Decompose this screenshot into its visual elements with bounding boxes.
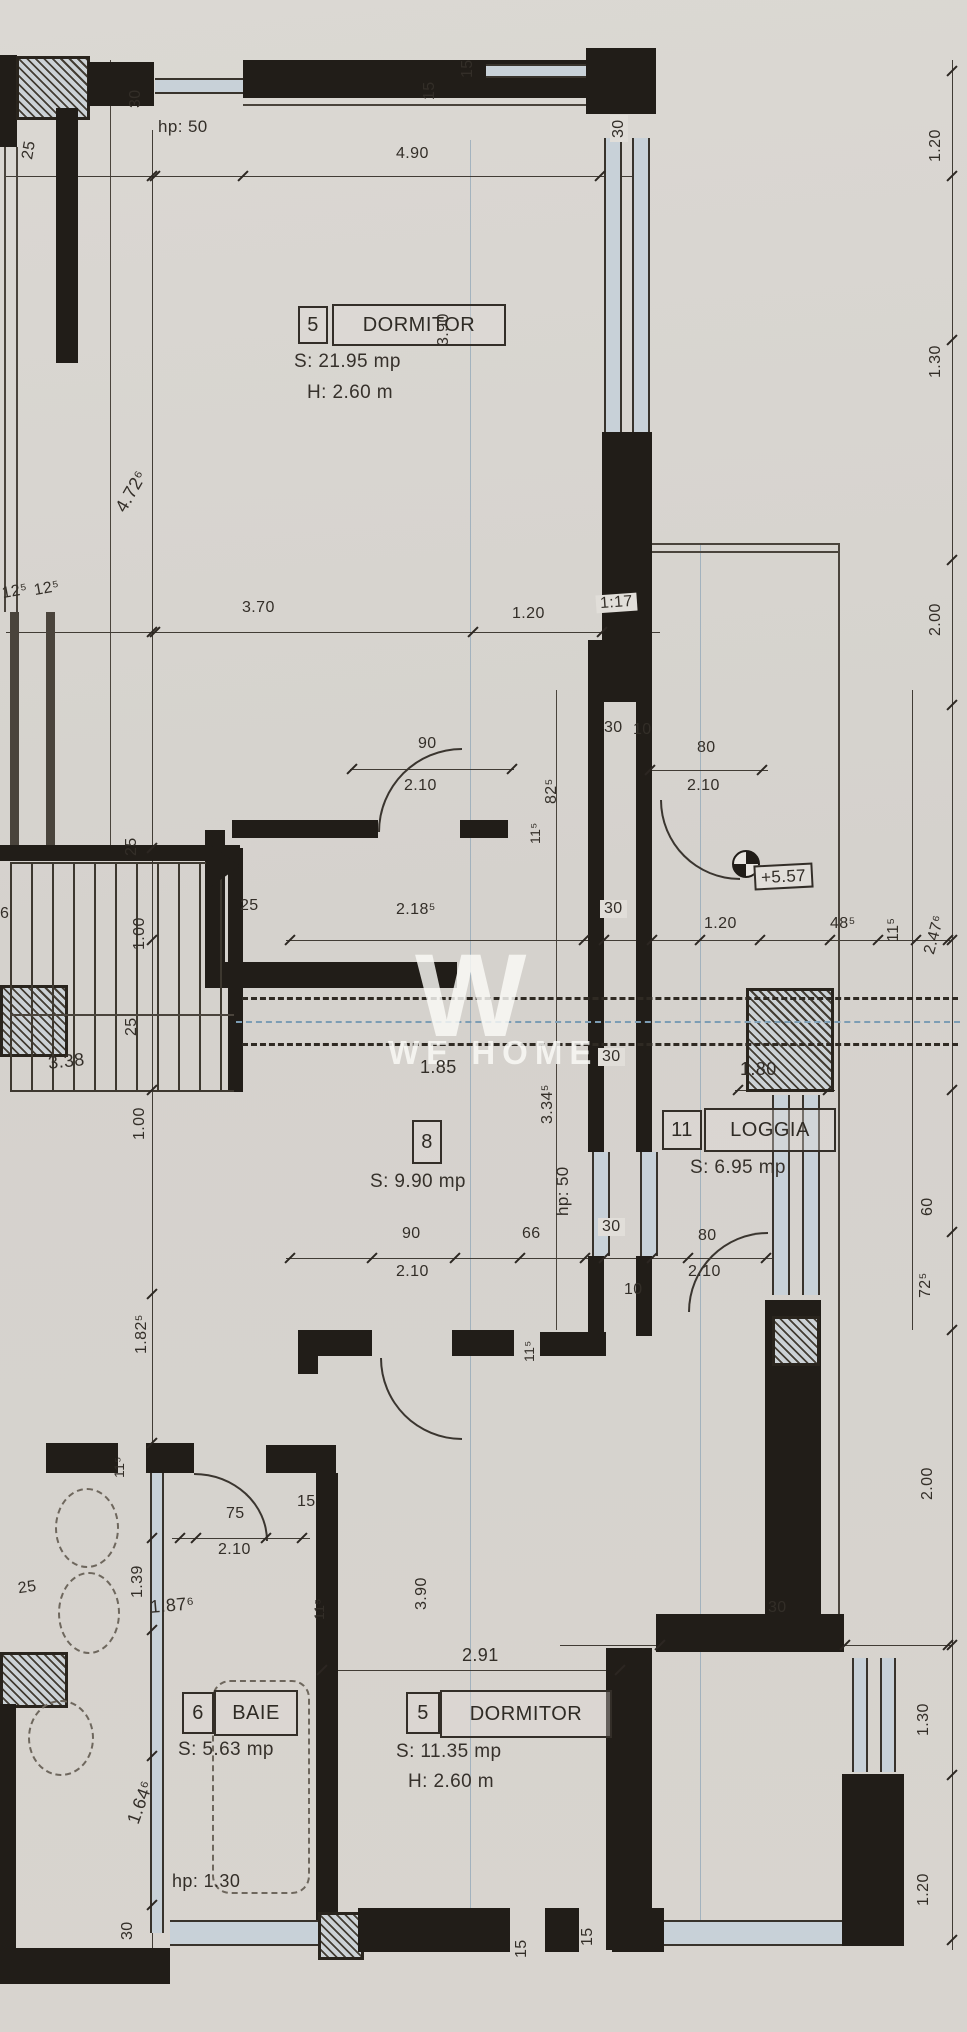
door-arc-90-bottom bbox=[380, 1358, 462, 1440]
section-line-blue bbox=[236, 1021, 960, 1023]
dim-door4-width: 80 bbox=[698, 1228, 717, 1244]
wall-top-inner-face bbox=[243, 104, 593, 106]
wall-right-seg1 bbox=[602, 432, 652, 504]
dim-48-5: 48⁵ bbox=[830, 916, 856, 932]
dim-2-00-right-low: 2.00 bbox=[920, 1467, 936, 1500]
dim-25-stair-c: 25 bbox=[124, 1017, 140, 1036]
wall-hall-baie-b bbox=[146, 1443, 194, 1473]
dim-15-top-b: 15 bbox=[460, 59, 476, 78]
room-11-name-box: LOGGIA bbox=[704, 1108, 836, 1152]
wall-baie-divider bbox=[316, 1473, 338, 1933]
dim-10-shaft-top: 10 bbox=[633, 722, 652, 738]
window-right-low-b bbox=[880, 1658, 896, 1772]
dim-10-loggia: 10 bbox=[624, 1282, 643, 1298]
wall-dorm5b-right bbox=[606, 1648, 652, 1950]
dim-door2-height: 2.10 bbox=[687, 778, 720, 794]
dim-line-top bbox=[6, 176, 642, 177]
dim-11-5-hall: 11⁵ bbox=[112, 1456, 126, 1478]
parapet-note-top: hp: 50 bbox=[158, 118, 208, 135]
wall-bottom-right-pier bbox=[842, 1774, 904, 1946]
wall-room8-bottom-stub bbox=[298, 1330, 318, 1374]
window-bottom-right bbox=[664, 1920, 842, 1946]
dim-line-door2 bbox=[650, 770, 768, 771]
dim-door3-height: 2.10 bbox=[396, 1264, 429, 1280]
dim-3-70: 3.70 bbox=[242, 600, 275, 616]
dim-1-39: 1.39 bbox=[130, 1565, 146, 1598]
dim-1-17: 1:17 bbox=[595, 593, 637, 614]
room-11-number-box: 11 bbox=[662, 1110, 702, 1150]
wall-hall-baie-c bbox=[266, 1445, 336, 1473]
fixture-sink bbox=[55, 1488, 119, 1568]
wall-left-line-a bbox=[4, 147, 6, 612]
wall-stair-outer-a bbox=[10, 612, 19, 846]
dim-30-shaft-bottom: 30 bbox=[598, 1218, 625, 1236]
wall-door1-left bbox=[232, 820, 378, 838]
dim-1-20-top: 1.20 bbox=[512, 606, 545, 622]
dim-line-door3 bbox=[286, 1258, 772, 1259]
wall-shaft-left-low bbox=[588, 1256, 604, 1336]
wall-top-left-edge bbox=[0, 55, 17, 147]
dim-chain-right-inner bbox=[912, 690, 913, 1330]
window-right-tall-outer bbox=[604, 138, 622, 434]
window-right-low-a bbox=[852, 1658, 868, 1772]
fixture-basin bbox=[58, 1572, 120, 1654]
room-6-name-box: BAIE bbox=[214, 1690, 298, 1736]
wall-bottom-c bbox=[612, 1908, 664, 1952]
dim-15-bottom-b: 15 bbox=[580, 1927, 596, 1946]
dim-11-5-door1: 11⁵ bbox=[528, 822, 542, 844]
wall-door1-right bbox=[460, 820, 508, 838]
room-5b-height: H: 2.60 m bbox=[408, 1772, 494, 1793]
wall-left-bottom bbox=[0, 1704, 16, 1954]
stair-landing-line bbox=[10, 1014, 234, 1016]
dim-1-82-5: 1.82⁵ bbox=[134, 1314, 150, 1354]
wall-left-line-b bbox=[16, 147, 18, 612]
dim-3-90-top: 3.90 bbox=[436, 313, 452, 346]
dim-line-370 bbox=[6, 632, 660, 633]
room-6-area: S: 5.63 mp bbox=[178, 1740, 274, 1761]
room-8-area: S: 9.90 mp bbox=[370, 1172, 466, 1193]
dim-door4-height: 2.10 bbox=[688, 1264, 721, 1280]
dim-door1-height: 2.10 bbox=[404, 778, 437, 794]
room-8-number-box: 8 bbox=[412, 1120, 442, 1164]
dim-25-top-left: 25 bbox=[20, 140, 39, 161]
window-shaft-hp50 bbox=[592, 1152, 610, 1256]
dim-82-5: 82⁵ bbox=[544, 778, 560, 804]
dim-4-72-6: 4.72⁶ bbox=[112, 468, 150, 515]
wall-stair-top bbox=[0, 845, 240, 861]
door-arc-80-top bbox=[660, 800, 740, 880]
dim-1-80: 1.80 bbox=[740, 1060, 777, 1078]
room-5b-area: S: 11.35 mp bbox=[396, 1742, 501, 1763]
wall-top-left-wing bbox=[88, 62, 154, 106]
dim-1-87-6: 1.87⁶ bbox=[149, 1594, 195, 1616]
dim-chain-right bbox=[952, 60, 953, 1950]
wall-room8-bottom-b bbox=[452, 1330, 514, 1356]
parapet-note-baie: hp: 1.30 bbox=[172, 1872, 240, 1890]
dim-30-top-left: 30 bbox=[128, 89, 144, 108]
wall-room8-bottom-c bbox=[540, 1332, 606, 1356]
dim-3-38: 3.38 bbox=[47, 1050, 85, 1072]
dim-4-90: 4.90 bbox=[396, 146, 429, 162]
dim-1-20-right-top: 1.20 bbox=[928, 129, 944, 162]
dim-30-shaft-mid: 30 bbox=[600, 900, 627, 918]
wall-neighbor-pier bbox=[56, 108, 78, 363]
dim-15-top-a: 15 bbox=[422, 81, 438, 100]
room-5b-number-box: 5 bbox=[406, 1692, 440, 1734]
room-5a-name-box: DORMITOR bbox=[332, 304, 506, 346]
dim-line-291 bbox=[318, 1670, 625, 1671]
dim-2-18-5: 2.18⁵ bbox=[396, 902, 436, 918]
dim-2-00-right-top: 2.00 bbox=[928, 603, 944, 636]
window-baie-left-a bbox=[150, 1473, 164, 1933]
loggia-top-edge-b bbox=[652, 551, 840, 553]
window-right-tall-inner bbox=[632, 138, 650, 434]
dim-1-30-right-low: 1.30 bbox=[916, 1703, 932, 1736]
dim-25-bottom-left: 25 bbox=[17, 1579, 38, 1597]
section-line-a bbox=[242, 997, 958, 1000]
wall-bottom-a bbox=[358, 1908, 510, 1952]
dim-25-stair-right: 25 bbox=[240, 898, 259, 914]
room-5a-number-box: 5 bbox=[298, 306, 328, 344]
dim-door5-height: 2.10 bbox=[218, 1542, 251, 1558]
dim-15-baie: 15 bbox=[297, 1494, 316, 1510]
dim-11-5-room8: 11⁵ bbox=[522, 1340, 536, 1362]
level-mark-label: +5.57 bbox=[753, 862, 813, 890]
wall-stair-outer-b bbox=[46, 612, 55, 846]
dim-1-20-right-low: 1.20 bbox=[916, 1873, 932, 1906]
dim-1-00-stair-b: 1.00 bbox=[132, 1107, 148, 1140]
wall-hatched-top-left bbox=[16, 56, 90, 120]
loggia-right-edge bbox=[838, 543, 840, 1645]
dim-door2-width: 80 bbox=[697, 740, 716, 756]
fixture-toilet bbox=[28, 1700, 94, 1776]
dim-25-stair-a: 25 bbox=[124, 837, 140, 856]
window-shaft-hp50-b bbox=[640, 1152, 658, 1256]
dim-15-bottom-a: 15 bbox=[514, 1939, 530, 1958]
dim-3-90-bottom: 3.90 bbox=[414, 1577, 430, 1610]
wall-loggia-bottom bbox=[656, 1614, 844, 1652]
dim-2-91: 2.91 bbox=[462, 1646, 499, 1664]
dim-1-20-mid: 1.20 bbox=[704, 916, 737, 932]
dim-30-shaft-top: 30 bbox=[604, 720, 623, 736]
dim-60-right: 60 bbox=[920, 1197, 936, 1216]
dim-door1-width: 90 bbox=[418, 736, 437, 752]
loggia-top-edge bbox=[652, 543, 840, 545]
staircase bbox=[10, 862, 234, 1092]
room-5a-height: H: 2.60 m bbox=[307, 383, 393, 404]
dim-12-5-a: 12⁵ bbox=[1, 582, 29, 602]
dim-12-5-b: 12⁵ bbox=[33, 579, 61, 599]
axis-vertical-left bbox=[110, 60, 111, 860]
wall-bottom-left-corner bbox=[0, 1948, 170, 1984]
dim-6-left: 6 bbox=[0, 906, 9, 922]
dim-30-shaft-low: 30 bbox=[598, 1048, 625, 1066]
dim-door3-width: 90 bbox=[402, 1226, 421, 1242]
dim-30-bottom-right: 30 bbox=[768, 1600, 787, 1616]
section-line-b bbox=[242, 1043, 958, 1046]
dim-30-bottom-left: 30 bbox=[120, 1921, 136, 1940]
dim-66: 66 bbox=[522, 1226, 541, 1242]
wall-hall-baie-a bbox=[46, 1443, 118, 1473]
floor-plan-canvas: W WE HOME 5 DORMITOR S: 21.95 mp H: 2.60… bbox=[0, 0, 967, 2032]
wall-shaft-right bbox=[636, 640, 652, 1152]
room-6-number-box: 6 bbox=[182, 1692, 214, 1734]
dim-1-00-stair-a: 1.00 bbox=[132, 917, 148, 950]
dim-door5-width: 75 bbox=[226, 1506, 245, 1522]
dim-1-85: 1.85 bbox=[420, 1058, 457, 1076]
wall-shaft-left bbox=[588, 640, 604, 1152]
dim-30-top-right: 30 bbox=[610, 115, 628, 142]
room-11-area: S: 6.95 mp bbox=[690, 1158, 786, 1179]
dim-1-30-right-top: 1.30 bbox=[928, 345, 944, 378]
dim-2-47-6: 2.47⁶ bbox=[922, 914, 948, 957]
room-5b-name-box: DORMITOR bbox=[440, 1690, 612, 1738]
stair-direction-arrow bbox=[206, 842, 240, 890]
dim-11-5-baie: 11⁵ bbox=[312, 1598, 326, 1620]
wall-bottom-b bbox=[545, 1908, 579, 1952]
dim-line-2185 bbox=[286, 940, 950, 941]
wall-hatched-pier-top bbox=[772, 1316, 820, 1366]
dim-11-5-mid: 11⁵ bbox=[886, 918, 902, 942]
window-top-right-corner bbox=[486, 64, 588, 78]
room-5a-area: S: 21.95 mp bbox=[294, 352, 401, 373]
dim-72-5-right: 72⁵ bbox=[918, 1272, 934, 1298]
window-bottom-left bbox=[170, 1920, 318, 1946]
parapet-note-mid: hp: 50 bbox=[554, 1166, 571, 1216]
wall-pier-top-right bbox=[586, 48, 656, 114]
window-parapet-top bbox=[155, 78, 243, 94]
dim-3-34-5: 3.34⁵ bbox=[540, 1084, 556, 1124]
